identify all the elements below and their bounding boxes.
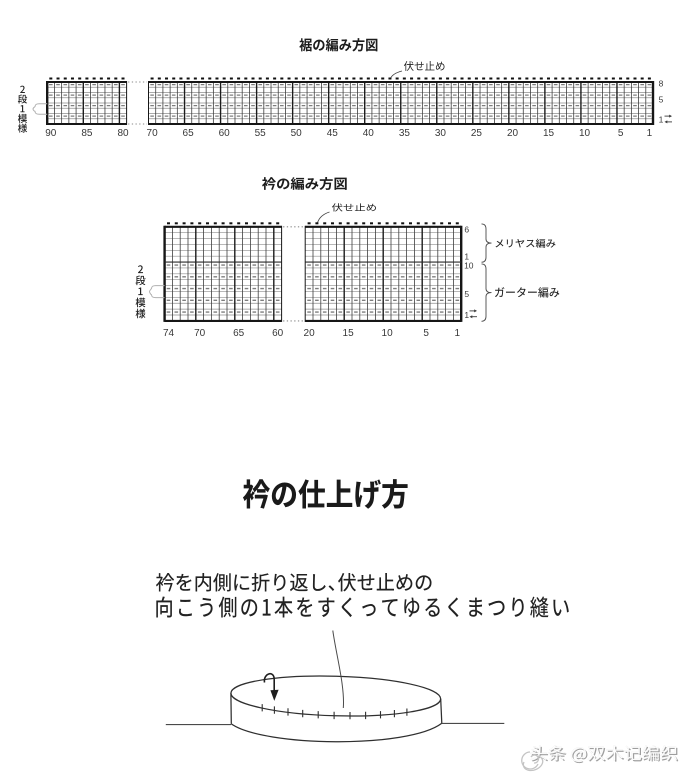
svg-text:65: 65 <box>183 128 195 139</box>
svg-text:20: 20 <box>304 328 316 339</box>
svg-text:45: 45 <box>327 128 339 139</box>
svg-text:5: 5 <box>618 128 624 139</box>
svg-text:30: 30 <box>435 128 447 139</box>
svg-text:90: 90 <box>45 128 57 139</box>
svg-text:6: 6 <box>464 225 469 235</box>
svg-text:35: 35 <box>399 128 411 139</box>
svg-text:65: 65 <box>233 328 245 339</box>
svg-text:10: 10 <box>464 260 474 270</box>
svg-text:74: 74 <box>163 328 175 339</box>
svg-text:60: 60 <box>272 328 284 339</box>
svg-text:10: 10 <box>579 128 591 139</box>
svg-text:15: 15 <box>343 328 355 339</box>
svg-text:8: 8 <box>659 79 664 89</box>
svg-text:55: 55 <box>255 128 267 139</box>
svg-text:85: 85 <box>81 128 93 139</box>
svg-text:1: 1 <box>464 310 469 320</box>
svg-text:25: 25 <box>471 128 483 139</box>
svg-text:50: 50 <box>291 128 303 139</box>
svg-text:5: 5 <box>423 328 429 339</box>
svg-text:40: 40 <box>363 128 375 139</box>
svg-text:5: 5 <box>464 289 469 299</box>
svg-text:1: 1 <box>647 128 653 139</box>
svg-text:60: 60 <box>219 128 231 139</box>
svg-text:1: 1 <box>455 328 461 339</box>
svg-text:70: 70 <box>147 128 159 139</box>
svg-text:80: 80 <box>117 128 129 139</box>
svg-text:15: 15 <box>543 128 555 139</box>
svg-text:70: 70 <box>194 328 206 339</box>
svg-text:1: 1 <box>659 114 664 124</box>
svg-text:20: 20 <box>507 128 519 139</box>
svg-text:5: 5 <box>659 95 664 105</box>
svg-text:10: 10 <box>382 328 394 339</box>
